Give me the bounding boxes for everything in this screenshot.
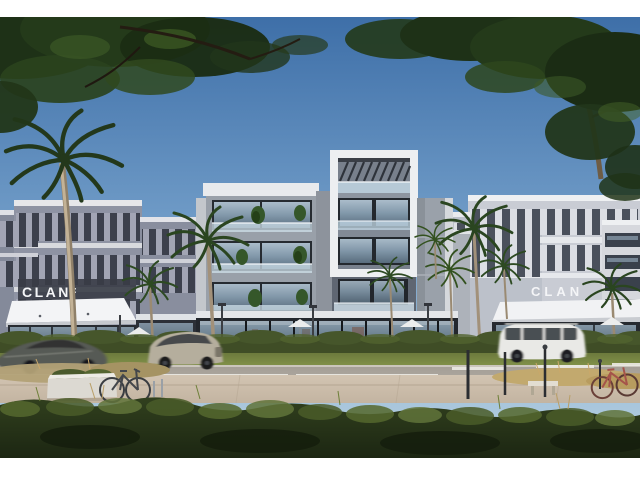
clan-sign-left: CLAN <box>22 284 71 300</box>
render-frame: CLAN <box>0 17 640 458</box>
architectural-render-photo: CLAN <box>0 0 640 480</box>
car-white-suv <box>498 324 586 363</box>
scene: CLAN <box>0 17 640 458</box>
clan-sign-right: CLAN <box>531 284 583 299</box>
planter-box <box>47 369 117 401</box>
